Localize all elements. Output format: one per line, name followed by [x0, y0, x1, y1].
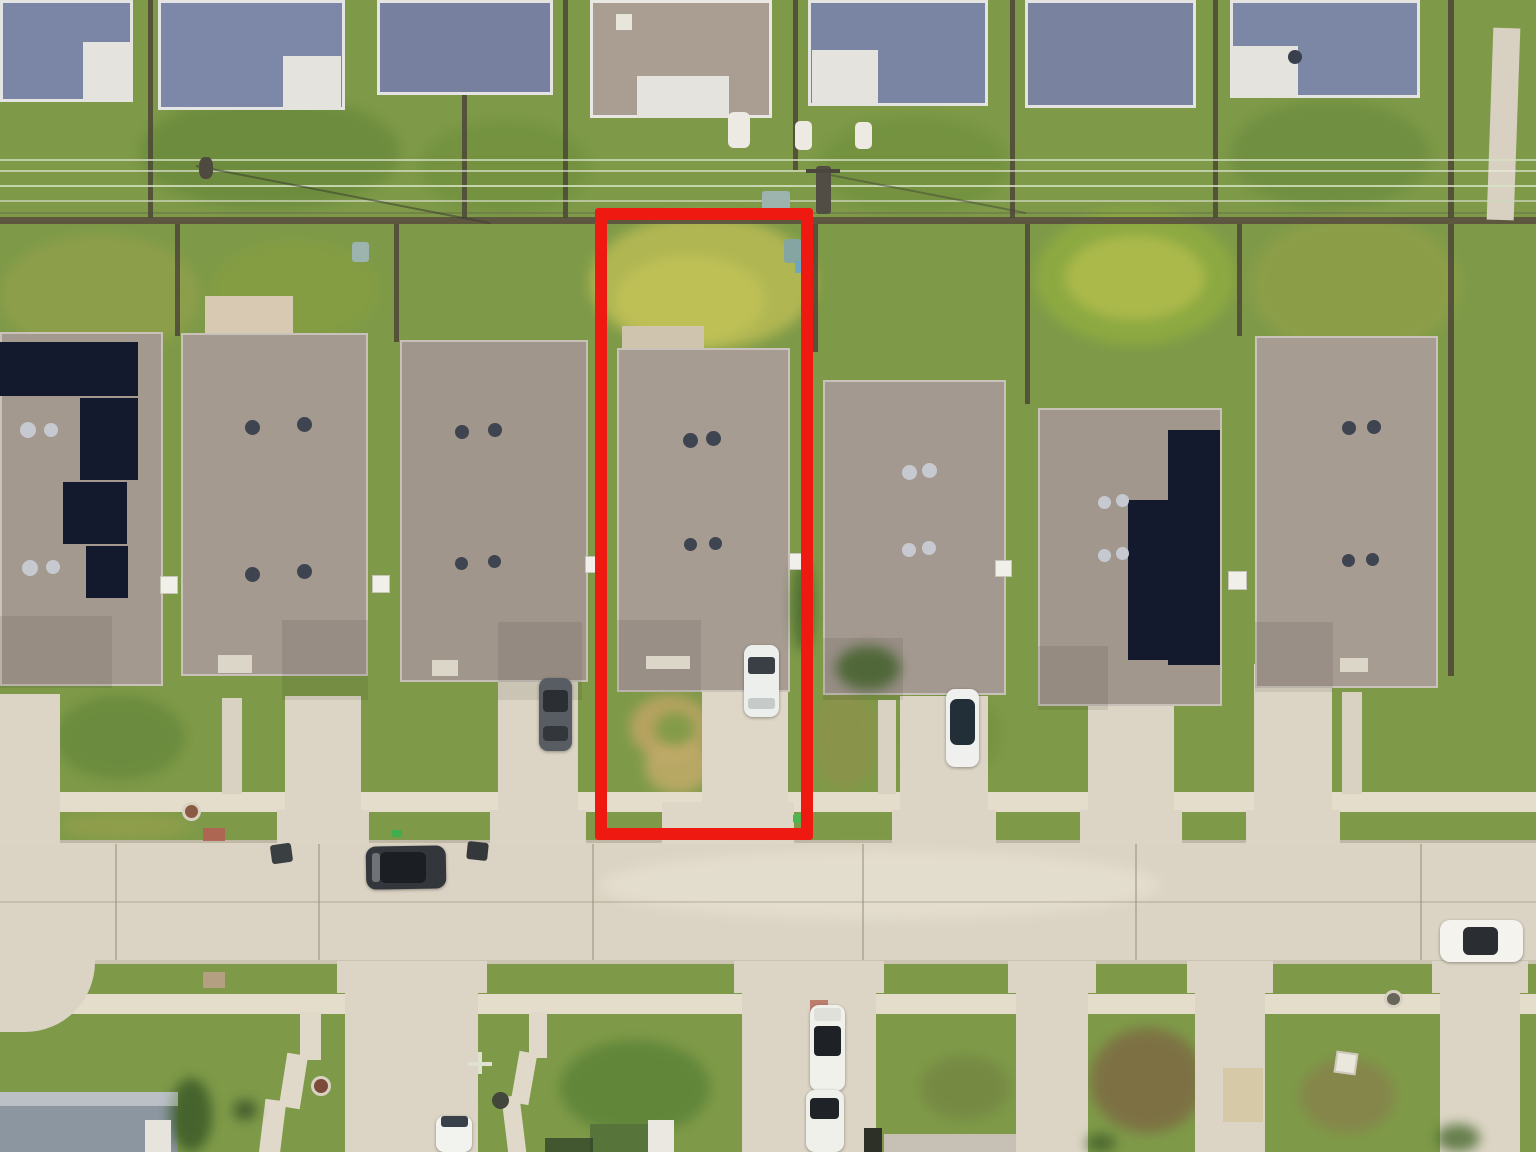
- driveway: [0, 694, 60, 844]
- car-white-street-glass: [1463, 927, 1498, 955]
- utility-marker-green: [392, 830, 402, 837]
- brick-patch: [203, 828, 225, 841]
- bottom-door-shadow: [864, 1128, 882, 1152]
- garage-wing-shade: [1038, 646, 1108, 710]
- front-porch: [432, 660, 458, 676]
- roof-vent-light: [20, 422, 36, 438]
- roof-vent-light: [902, 465, 917, 480]
- shrub-bed: [545, 1138, 593, 1152]
- fence-side: [813, 224, 818, 352]
- car-sedan-glass: [543, 690, 568, 712]
- utility-pole: [199, 157, 213, 179]
- manhole: [182, 802, 201, 821]
- front-porch: [218, 655, 252, 673]
- roof-vent: [488, 423, 502, 437]
- driveway-apron: [277, 810, 369, 844]
- driveway-apron: [892, 810, 996, 844]
- manhole: [1384, 990, 1403, 1008]
- shrub-bed: [590, 1124, 652, 1152]
- driveway-apron: [734, 961, 884, 993]
- bottom-wall: [884, 1134, 1016, 1152]
- trash-bin: [270, 843, 293, 865]
- street-joint: [0, 901, 1536, 903]
- roof-vent: [1288, 50, 1302, 64]
- solar-panel-array: [86, 546, 128, 598]
- driveway-apron: [1432, 961, 1528, 993]
- roof-vent-light: [1098, 549, 1111, 562]
- roof-vent: [245, 420, 260, 435]
- lawn-patch: [1230, 100, 1430, 210]
- utility-pole: [816, 166, 831, 214]
- paver-patio: [205, 296, 293, 334]
- car-sedan-rear-glass: [543, 726, 568, 741]
- roof-vent: [455, 557, 468, 570]
- sandbox: [1334, 1051, 1359, 1076]
- trash-bin: [466, 841, 489, 861]
- car-white-driveway-glass: [950, 699, 975, 745]
- ac-unit: [728, 112, 750, 148]
- satellite-dish: [160, 576, 178, 594]
- garage-wing-shade: [0, 616, 112, 688]
- roof-vent-light: [46, 560, 60, 574]
- utility-box: [352, 242, 369, 262]
- roof-vent-light: [902, 543, 916, 557]
- street-light-area: [600, 850, 1160, 920]
- bottom-house-ridge: [0, 1092, 178, 1106]
- front-walk: [878, 700, 896, 794]
- hedge: [1086, 1134, 1116, 1152]
- power-line: [0, 159, 1536, 161]
- power-line: [0, 185, 1536, 187]
- driveway-apron: [337, 961, 487, 993]
- car-suv-windshield: [372, 853, 380, 882]
- fence-side: [394, 224, 399, 342]
- roof-vent: [297, 417, 312, 432]
- aerial-photo-scene: [0, 0, 1536, 1152]
- garage-wing-shade: [282, 620, 368, 700]
- roof-vent-light: [1116, 494, 1129, 507]
- manhole: [492, 1092, 509, 1109]
- ac-unit: [855, 122, 872, 149]
- driveway-apron: [490, 810, 586, 844]
- fence-side: [175, 224, 180, 336]
- satellite-dish: [372, 575, 390, 593]
- car-bottom-left-glass: [441, 1116, 468, 1127]
- roof-vent-light: [922, 463, 937, 478]
- satellite-dish: [995, 560, 1012, 577]
- car-bottom-1-glass: [814, 1026, 841, 1056]
- chimney: [616, 14, 632, 30]
- top-house-roof: [1025, 0, 1196, 108]
- roof-vent-light: [22, 560, 38, 576]
- car-bottom-2-glass: [810, 1098, 839, 1119]
- solar-panel-array: [0, 342, 138, 396]
- top-house-patio: [637, 76, 729, 118]
- top-house-patio: [283, 56, 341, 110]
- manhole: [311, 1076, 331, 1096]
- hedge: [1436, 1124, 1480, 1152]
- driveway-apron: [1080, 810, 1182, 844]
- tree: [233, 1100, 257, 1120]
- driveway-apron: [1246, 810, 1340, 844]
- roof-vent: [245, 567, 260, 582]
- front-walk: [1342, 692, 1362, 794]
- roof-vent: [1366, 553, 1379, 566]
- solar-panel-array: [1128, 500, 1168, 660]
- solar-panel-array: [1168, 430, 1220, 665]
- roof-vent: [297, 564, 312, 579]
- car-bottom-1-hood: [814, 1008, 841, 1021]
- fence-side: [1448, 224, 1454, 676]
- brick-patch: [203, 972, 225, 988]
- solar-panel-array: [63, 482, 127, 544]
- front-walk: [222, 698, 242, 794]
- roof-vent: [488, 555, 501, 568]
- top-house-patio: [83, 42, 133, 102]
- lawn-patch: [1065, 235, 1205, 320]
- driveway-apron: [1008, 961, 1096, 993]
- driveway-apron: [1187, 961, 1273, 993]
- hedge: [170, 1078, 212, 1152]
- roof-vent-light: [44, 423, 58, 437]
- s-path: [529, 1012, 547, 1058]
- top-house-roof: [377, 0, 553, 95]
- roof-vent: [1342, 554, 1355, 567]
- ac-unit: [795, 121, 812, 150]
- front-porch: [1340, 658, 1368, 672]
- dry-lawn: [812, 685, 878, 790]
- lawn-patch: [55, 695, 185, 780]
- solar-panel-array: [80, 398, 138, 480]
- lawn-patch: [560, 1040, 710, 1135]
- lawn-patch: [140, 95, 400, 210]
- roof-vent: [1342, 421, 1356, 435]
- dry-lawn: [1090, 1028, 1205, 1133]
- paving-patch: [1223, 1068, 1263, 1122]
- property-boundary-outline: [595, 208, 813, 840]
- satellite-dish: [1228, 571, 1247, 590]
- roof-vent: [455, 425, 469, 439]
- bottom-house-wall: [648, 1120, 674, 1152]
- roof-vent-light: [1098, 496, 1111, 509]
- fence-side: [1237, 224, 1242, 336]
- top-house-patio: [812, 50, 878, 106]
- fence-side: [1025, 224, 1030, 404]
- hedge: [836, 646, 900, 690]
- curved-path: [300, 1012, 321, 1060]
- roof-vent: [1367, 420, 1381, 434]
- car-suv-glass: [380, 852, 426, 883]
- roof-vent-light: [922, 541, 936, 555]
- lawn-patch: [1250, 215, 1460, 355]
- garage-wing-shade: [1255, 622, 1333, 692]
- bottom-house-wall: [145, 1120, 171, 1152]
- utility-pole-crossarm: [806, 169, 840, 173]
- dry-lawn: [60, 812, 190, 840]
- sprinkler-marker: [478, 1052, 482, 1074]
- roof-vent-light: [1116, 547, 1129, 560]
- dry-lawn: [920, 1055, 1010, 1120]
